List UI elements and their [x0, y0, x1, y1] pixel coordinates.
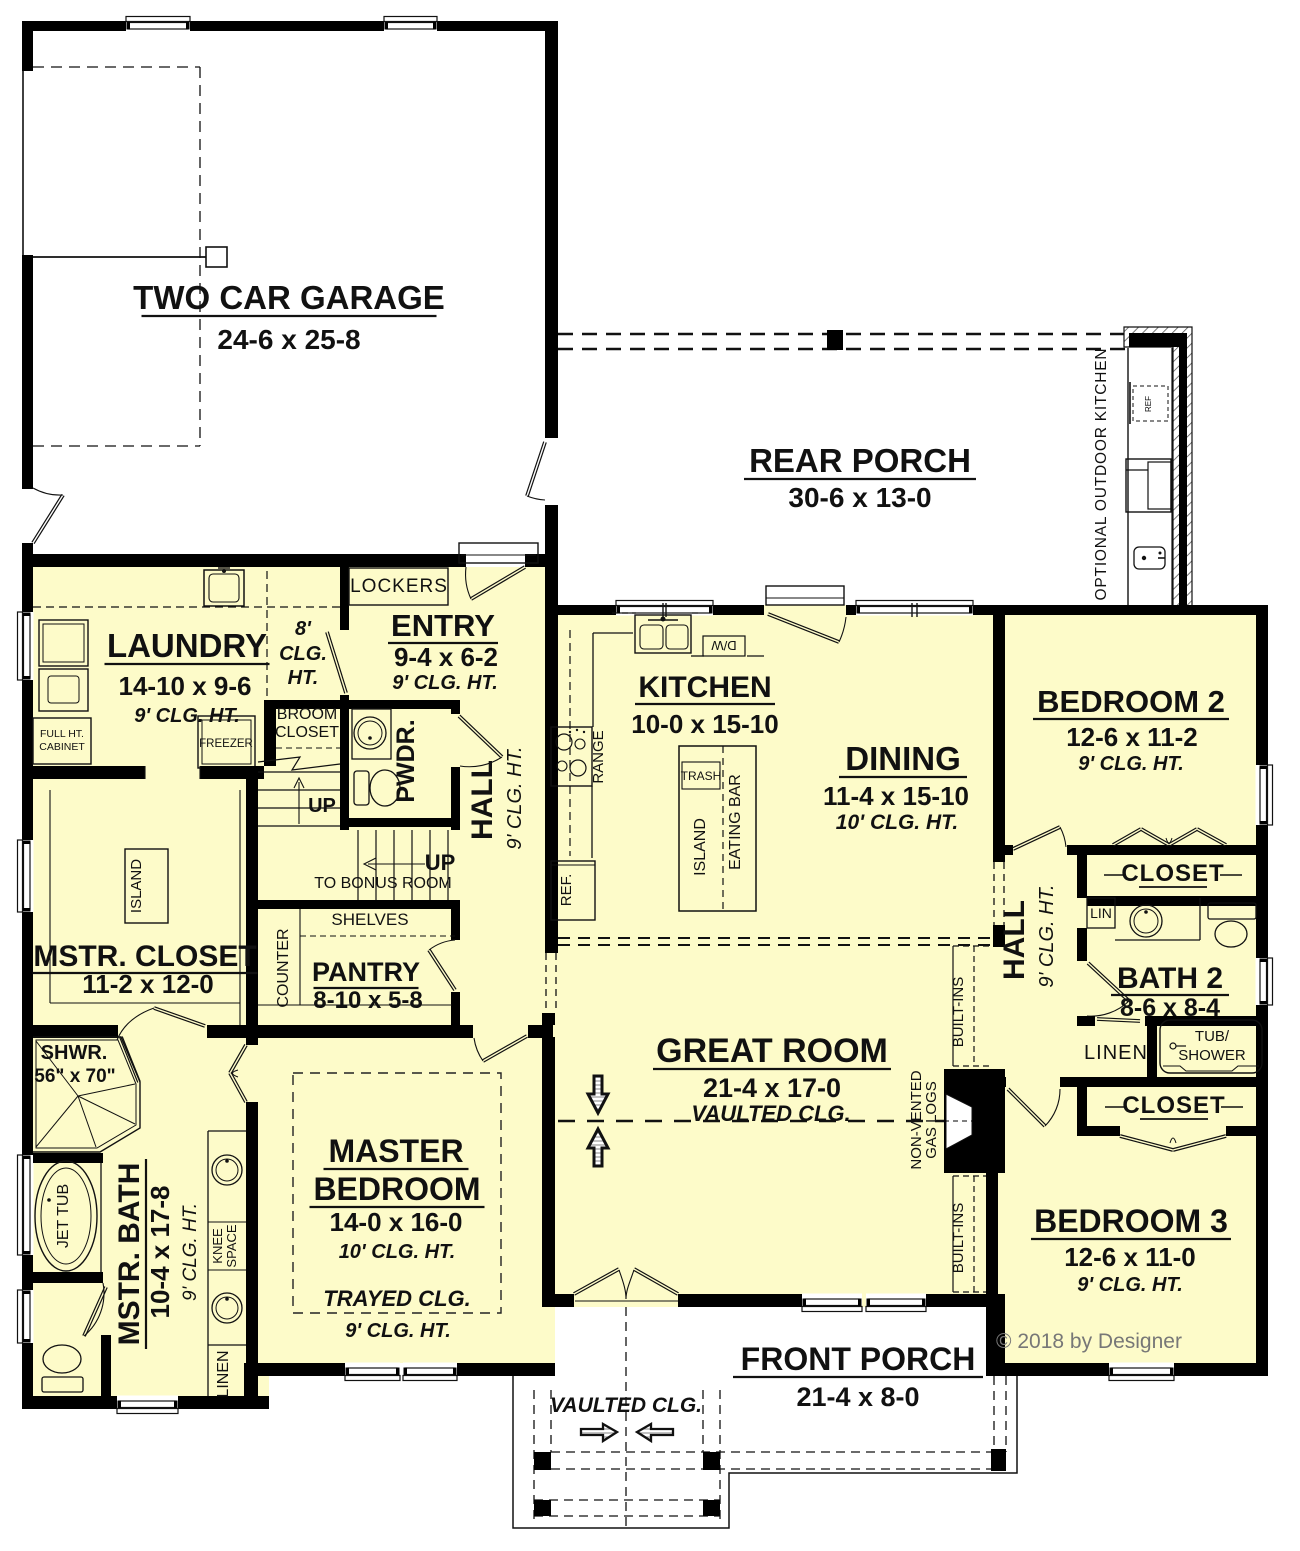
- svg-text:10-0 x 15-10: 10-0 x 15-10: [631, 709, 778, 739]
- svg-text:SHELVES: SHELVES: [331, 910, 408, 929]
- svg-text:8': 8': [295, 618, 312, 640]
- svg-text:10' CLG. HT.: 10' CLG. HT.: [836, 811, 958, 834]
- svg-text:BEDROOM: BEDROOM: [313, 1171, 480, 1207]
- svg-text:ENTRY: ENTRY: [391, 608, 495, 643]
- svg-text:DINING: DINING: [845, 740, 961, 777]
- svg-text:11-2 x 12-0: 11-2 x 12-0: [82, 969, 214, 999]
- svg-text:LAUNDRY: LAUNDRY: [107, 627, 267, 664]
- svg-text:HALL: HALL: [466, 760, 499, 840]
- svg-text:FREEZER: FREEZER: [199, 738, 253, 750]
- svg-text:LIN: LIN: [1090, 905, 1112, 921]
- svg-text:CLOSET: CLOSET: [1122, 1092, 1225, 1119]
- svg-text:8-10 x 5-8: 8-10 x 5-8: [313, 987, 422, 1014]
- svg-text:BATH 2: BATH 2: [1117, 962, 1223, 995]
- svg-text:FRONT PORCH: FRONT PORCH: [741, 1341, 976, 1377]
- svg-text:CLOSET: CLOSET: [1121, 860, 1224, 887]
- svg-text:BUILT-INS: BUILT-INS: [950, 977, 967, 1048]
- svg-text:11-4 x 15-10: 11-4 x 15-10: [823, 781, 969, 811]
- svg-text:UP: UP: [308, 795, 336, 817]
- svg-text:PANTRY: PANTRY: [312, 957, 420, 987]
- svg-text:9' CLG. HT.: 9' CLG. HT.: [345, 1320, 451, 1342]
- svg-text:9' CLG. HT.: 9' CLG. HT.: [1078, 753, 1184, 775]
- svg-text:TWO CAR GARAGE: TWO CAR GARAGE: [133, 279, 445, 316]
- svg-text:BROOM: BROOM: [277, 706, 337, 723]
- svg-text:14-10 x 9-6: 14-10 x 9-6: [119, 671, 252, 701]
- svg-text:REAR PORCH: REAR PORCH: [749, 442, 971, 479]
- svg-text:GREAT ROOM: GREAT ROOM: [656, 1032, 888, 1070]
- svg-text:ISLAND: ISLAND: [692, 818, 709, 876]
- svg-text:12-6 x 11-2: 12-6 x 11-2: [1066, 722, 1198, 752]
- svg-text:LINEN: LINEN: [1084, 1042, 1148, 1064]
- svg-text:10-4 x 17-8: 10-4 x 17-8: [145, 1186, 175, 1319]
- svg-text:MASTER: MASTER: [328, 1133, 463, 1169]
- svg-text:56" x 70": 56" x 70": [34, 1066, 115, 1087]
- svg-text:SHWR.: SHWR.: [41, 1042, 108, 1064]
- svg-text:PWDR.: PWDR.: [392, 719, 420, 802]
- svg-text:SPACE: SPACE: [224, 1224, 239, 1267]
- svg-text:30-6 x 13-0: 30-6 x 13-0: [788, 482, 931, 513]
- svg-text:REF: REF: [1144, 396, 1153, 412]
- svg-text:D/W: D/W: [711, 638, 737, 653]
- svg-text:RANGE: RANGE: [590, 730, 607, 783]
- svg-text:KNEE: KNEE: [210, 1228, 225, 1264]
- svg-text:21-4 x 8-0: 21-4 x 8-0: [796, 1382, 919, 1412]
- svg-text:BEDROOM 2: BEDROOM 2: [1037, 684, 1225, 719]
- svg-text:COUNTER: COUNTER: [275, 928, 292, 1007]
- svg-text:© 2018 by Designer: © 2018 by Designer: [996, 1330, 1182, 1353]
- svg-text:TRASH: TRASH: [681, 769, 722, 783]
- svg-text:SHOWER: SHOWER: [1178, 1047, 1246, 1064]
- svg-text:BEDROOM 3: BEDROOM 3: [1034, 1203, 1228, 1239]
- svg-text:9' CLG. HT.: 9' CLG. HT.: [392, 672, 498, 694]
- svg-text:MSTR. BATH: MSTR. BATH: [113, 1163, 146, 1346]
- svg-text:REF.: REF.: [558, 874, 575, 907]
- svg-text:LOCKERS: LOCKERS: [350, 576, 448, 597]
- svg-text:21-4 x 17-0: 21-4 x 17-0: [703, 1073, 841, 1103]
- svg-text:24-6 x 25-8: 24-6 x 25-8: [217, 324, 360, 355]
- svg-text:HALL: HALL: [998, 900, 1031, 980]
- svg-text:FULL HT.: FULL HT.: [40, 728, 84, 740]
- svg-text:LINEN: LINEN: [215, 1350, 232, 1397]
- svg-text:VAULTED CLG.: VAULTED CLG.: [691, 1101, 850, 1126]
- svg-text:9' CLG. HT.: 9' CLG. HT.: [504, 746, 526, 849]
- svg-text:CLG.: CLG.: [279, 643, 327, 665]
- svg-text:9' CLG. HT.: 9' CLG. HT.: [134, 705, 240, 727]
- svg-text:TRAYED CLG.: TRAYED CLG.: [323, 1286, 470, 1311]
- svg-text:UP: UP: [425, 850, 456, 875]
- svg-text:OPTIONAL OUTDOOR KITCHEN: OPTIONAL OUTDOOR KITCHEN: [1093, 348, 1110, 601]
- svg-text:ISLAND: ISLAND: [128, 859, 145, 913]
- svg-text:14-0 x 16-0: 14-0 x 16-0: [330, 1207, 463, 1237]
- svg-text:EATING BAR: EATING BAR: [727, 774, 744, 870]
- svg-text:CLOSET: CLOSET: [275, 724, 339, 741]
- svg-text:TO BONUS ROOM: TO BONUS ROOM: [314, 875, 452, 892]
- svg-text:JET TUB: JET TUB: [55, 1184, 72, 1248]
- svg-text:TUB/: TUB/: [1195, 1028, 1230, 1045]
- svg-text:BUILT-INS: BUILT-INS: [950, 1203, 967, 1274]
- svg-text:9-4 x 6-2: 9-4 x 6-2: [394, 642, 498, 672]
- svg-text:12-6 x 11-0: 12-6 x 11-0: [1064, 1242, 1196, 1272]
- svg-text:9' CLG. HT.: 9' CLG. HT.: [1077, 1274, 1183, 1296]
- svg-text:CABINET: CABINET: [39, 741, 85, 753]
- svg-text:KITCHEN: KITCHEN: [638, 671, 771, 704]
- svg-text:10' CLG. HT.: 10' CLG. HT.: [339, 1241, 456, 1263]
- svg-text:9' CLG. HT.: 9' CLG. HT.: [1036, 884, 1058, 987]
- svg-text:9' CLG. HT.: 9' CLG. HT.: [180, 1203, 201, 1301]
- svg-text:VAULTED CLG.: VAULTED CLG.: [550, 1394, 702, 1417]
- svg-text:HT.: HT.: [288, 667, 319, 689]
